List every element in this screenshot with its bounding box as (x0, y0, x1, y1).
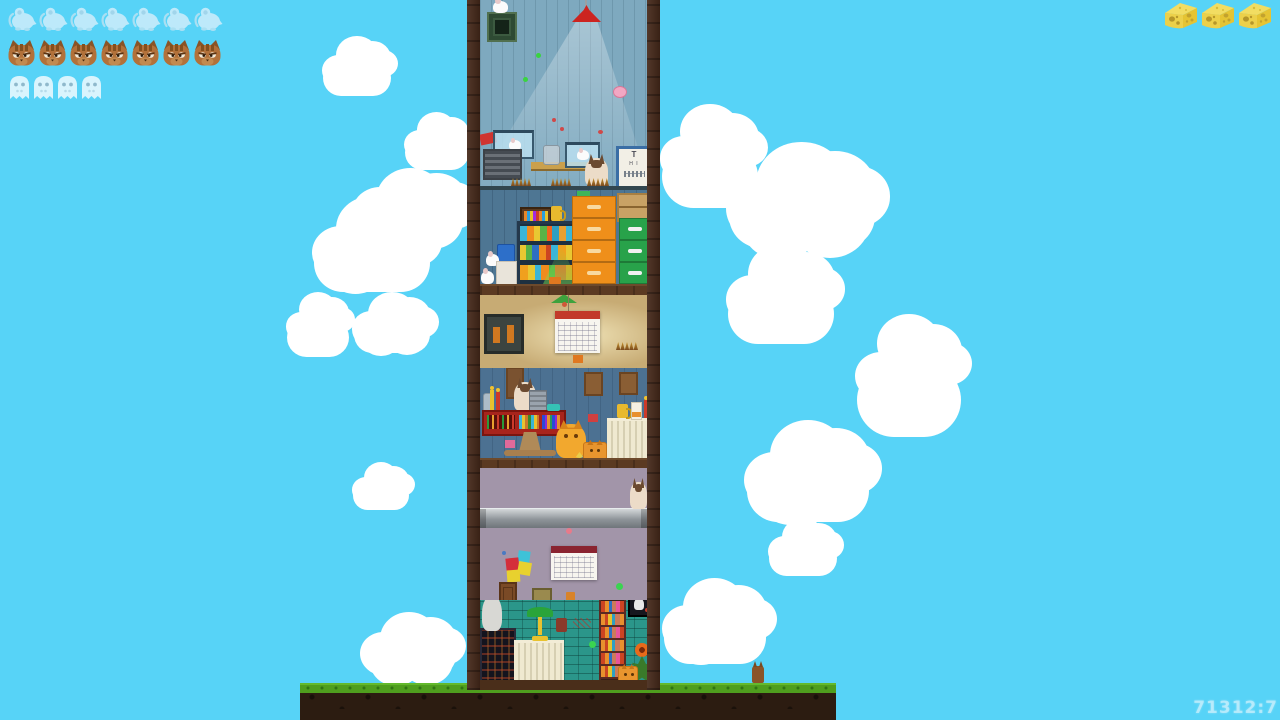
yellow-mug (551, 206, 562, 221)
eye-chart-row: T (619, 149, 647, 161)
juice-box (631, 402, 642, 420)
mouse-life-icon (100, 5, 130, 32)
red-candle (644, 400, 647, 418)
mouse-life-icon (7, 5, 37, 32)
cloud (352, 462, 410, 512)
score-display: 71312:7 (1193, 698, 1278, 718)
red-scribble (573, 618, 591, 628)
cloud (352, 292, 432, 356)
painting-detail (507, 325, 514, 343)
calendar-grid (558, 322, 597, 351)
counter-compartment (542, 415, 560, 429)
counter-compartment (519, 415, 539, 429)
cloud (360, 612, 458, 678)
white-mouse-sprite (493, 1, 508, 13)
eye-chart-row: H I (619, 161, 647, 169)
book-row (601, 653, 624, 666)
drawer (573, 219, 615, 241)
tower-left-wall (467, 0, 480, 690)
floor-divider (480, 284, 647, 295)
wooden-door (499, 582, 517, 600)
ghosts-row (9, 75, 223, 100)
tower-building: T H I (467, 0, 660, 690)
cat-face-box (583, 442, 607, 458)
ghost-icon (81, 75, 102, 100)
gray-cat-sprite (482, 600, 502, 631)
ghost-icon (9, 75, 30, 100)
pink-butterfly (505, 440, 515, 448)
cloud (662, 578, 768, 668)
metal-pipe (480, 508, 647, 528)
cat-icon (100, 39, 129, 67)
book-row (601, 614, 624, 627)
room-workshop (480, 368, 647, 458)
hud-status-panel (7, 5, 223, 100)
painting-detail (493, 327, 500, 343)
green-particle (589, 641, 596, 648)
eye-chart-poster: T H I (616, 146, 647, 188)
mouse-life-icon (131, 5, 161, 32)
calendar-grid (554, 556, 594, 578)
mouse-life-icon (162, 5, 192, 32)
game-screen[interactable]: T H I (0, 0, 1280, 720)
room-storage (480, 190, 647, 284)
drawer (573, 241, 615, 263)
green-filing-cabinet (619, 218, 647, 284)
room-teal-brick (480, 600, 647, 683)
blue-particle (502, 551, 506, 555)
calendar-string (568, 295, 569, 311)
room-purple (480, 468, 647, 600)
eye-chart-small-rows (624, 171, 645, 177)
room-tan (480, 295, 647, 368)
cloud (404, 112, 470, 172)
cat-icon (193, 39, 222, 67)
pink-particle (566, 528, 572, 534)
counter-compartment (487, 415, 515, 429)
paper-bag (496, 261, 517, 284)
green-particle (616, 583, 623, 590)
dark-vending-machine (480, 628, 516, 683)
siamese-cat-sprite (630, 482, 647, 509)
drawer (620, 263, 647, 284)
lamp-base (532, 636, 548, 641)
flower-head (635, 643, 647, 657)
hanging-board (619, 372, 638, 395)
drawer (573, 263, 615, 284)
yellow-candle (490, 390, 494, 410)
red-candle (496, 392, 500, 410)
room-attic: T H I (480, 0, 647, 188)
cheese-row (1164, 2, 1272, 30)
ghost-icon (33, 75, 54, 100)
book-row (601, 627, 624, 640)
pink-blob (613, 86, 627, 98)
red-particle (562, 302, 567, 307)
glass-jar (543, 145, 560, 165)
calendar-header (551, 546, 597, 553)
crate (532, 588, 552, 600)
cloud (322, 36, 392, 98)
red-butterfly (588, 414, 598, 422)
floor-divider (480, 458, 647, 468)
wall-calendar (555, 311, 600, 353)
book-row (601, 601, 624, 614)
dark-red-mug (556, 618, 567, 632)
white-mouse-sprite (577, 150, 589, 160)
cat-icon (69, 39, 98, 67)
orange-filing-cabinet (572, 196, 616, 284)
ceiling-lamp (572, 5, 601, 22)
orange-butterfly (573, 355, 583, 363)
red-particle (598, 130, 603, 134)
wall-calendar (551, 546, 597, 580)
cloud (744, 420, 872, 526)
cheese-icon (1238, 2, 1272, 30)
cat-icon (131, 39, 160, 67)
white-mouse-sprite (481, 271, 494, 284)
cat-picture-frame (628, 600, 647, 617)
book-row (601, 640, 624, 653)
cat-icon (38, 39, 67, 67)
cloud (312, 196, 432, 296)
hanging-board (584, 372, 603, 396)
mouse-life-icon (38, 5, 68, 32)
cyan-item (547, 404, 560, 411)
radiator (514, 640, 564, 683)
tower-right-wall (647, 0, 660, 690)
red-particle (560, 127, 564, 131)
cloud (726, 142, 878, 252)
green-particle (523, 77, 528, 82)
squirrel-sprite (752, 666, 764, 683)
drawer (620, 219, 647, 241)
orange-item (549, 277, 561, 284)
orange-item (566, 592, 575, 600)
bankers-lamp (527, 607, 553, 641)
lamp-shade (527, 607, 553, 617)
mouse-life-icon (193, 5, 223, 32)
air-grille (483, 149, 522, 180)
cloud (726, 244, 836, 348)
green-particle (536, 53, 541, 58)
red-particle (552, 118, 556, 122)
mouse-life-icon (69, 5, 99, 32)
drawer (573, 197, 615, 219)
radiator (607, 418, 647, 458)
cat-icon (7, 39, 36, 67)
cheese-icon (1201, 2, 1235, 30)
pedestal-table-base (504, 450, 556, 456)
calendar-header (555, 311, 600, 319)
tower-base-floor (480, 680, 647, 690)
lamp-stem (538, 617, 542, 635)
cat-icon (162, 39, 191, 67)
orange-cat-sprite (556, 424, 586, 458)
mice-lives-row (7, 5, 223, 32)
cats-row (7, 39, 223, 67)
yellow-mug (617, 404, 628, 418)
ghost-icon (57, 75, 78, 100)
cloud (768, 518, 838, 578)
vent-grate (487, 12, 517, 42)
cheese-icon (1164, 2, 1198, 30)
cloud (286, 292, 350, 360)
sticky-note-yellow (507, 570, 521, 583)
book-row (520, 226, 572, 241)
tower-interior: T H I (480, 0, 647, 690)
drawer (620, 241, 647, 263)
dark-painting (484, 314, 524, 354)
